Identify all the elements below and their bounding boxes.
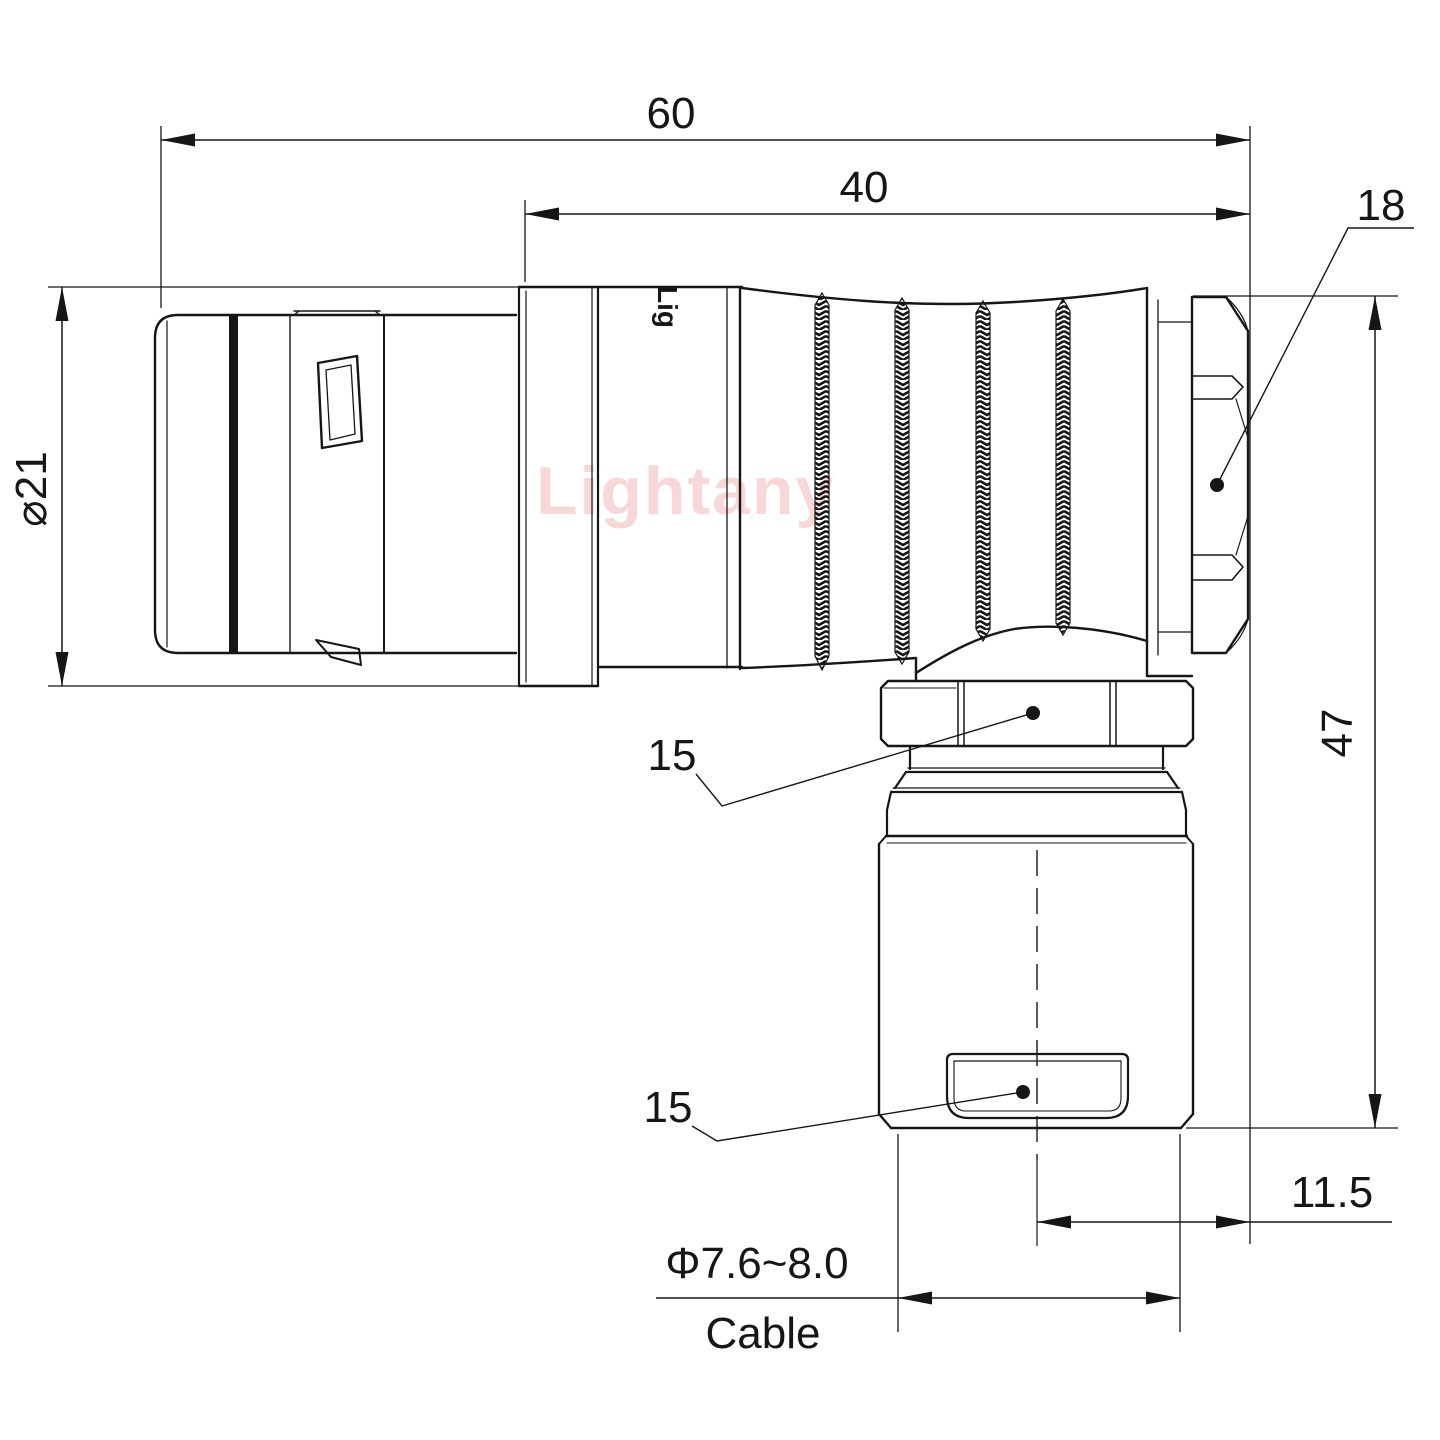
dim-text-18: 18 (1357, 181, 1406, 230)
dim-text-cable-label: Cable (706, 1309, 821, 1358)
arrow-40-left (525, 208, 559, 221)
arrow-11-5-right (1216, 1216, 1250, 1229)
arrow-47-top (1369, 296, 1382, 330)
barrel-bottom-chamfers (879, 1114, 1193, 1128)
hex-nut-groove-top (1192, 376, 1243, 399)
hex-nut-corner-arcs (1226, 297, 1248, 653)
knurl-band-2 (895, 298, 909, 664)
dim-text-60: 60 (647, 89, 696, 138)
knurl-band-1 (815, 293, 829, 670)
connector-body-outline (155, 287, 1248, 1128)
arrow-cable-right (1146, 1292, 1180, 1305)
arrow-11-5-left (1037, 1216, 1071, 1229)
knurl-bottom-curve (742, 658, 916, 681)
arrow-cable-left (898, 1292, 932, 1305)
dim-text-11-5: 11.5 (1291, 1168, 1373, 1217)
step-ring-lines (1158, 322, 1192, 632)
knurl-band-3 (976, 301, 990, 641)
arrow-40-right (1216, 208, 1250, 221)
elbow-s-curve (916, 627, 1147, 673)
flange-cone (895, 772, 1178, 788)
knurl-bands (815, 293, 1070, 670)
barrel-sides (879, 844, 1193, 1114)
flange-column (887, 792, 1186, 836)
arrow-dia21-bottom (56, 652, 69, 686)
arrow-60-right (1216, 134, 1250, 147)
dim-text-15-upper: 15 (648, 731, 697, 780)
knurl-top-curve (742, 288, 1147, 304)
dim-text-15-lower: 15 (644, 1083, 693, 1132)
connector-drawing: Lightany (0, 0, 1440, 1440)
arrow-dia21-top (56, 287, 69, 321)
leader-dot-18 (1210, 478, 1224, 492)
extension-lines (48, 126, 1398, 1332)
leader-lines (692, 228, 1414, 1141)
keyway-window-inner (326, 365, 355, 440)
technical-drawing-page: Lightany (0, 0, 1440, 1440)
leader-18 (1217, 228, 1414, 485)
body-logo-text: Lig (652, 286, 683, 328)
front-plug-outline (155, 315, 516, 653)
dim-text-cable-range: Φ7.6~8.0 (665, 1239, 848, 1288)
leader-dot-15-upper (1026, 706, 1040, 720)
watermark-text: Lightany (536, 453, 835, 529)
hex-nut-groove-bottom (1192, 555, 1243, 580)
leader-dot-15-lower (1016, 1085, 1030, 1099)
arrow-60-left (161, 134, 195, 147)
plug-dark-band (229, 315, 238, 653)
dim-text-47: 47 (1313, 709, 1362, 758)
arrow-47-bottom (1369, 1094, 1382, 1128)
knurl-band-4 (1056, 299, 1070, 635)
dim-text-dia21: ⌀21 (7, 451, 56, 526)
dimension-arrows (56, 134, 1382, 1305)
flange-neck (910, 746, 1163, 769)
hex-nut-outline (1192, 297, 1248, 653)
dim-text-40: 40 (840, 163, 889, 212)
hex-nut-facet-lines (1236, 399, 1248, 555)
leader-15-lower (692, 1092, 1023, 1141)
